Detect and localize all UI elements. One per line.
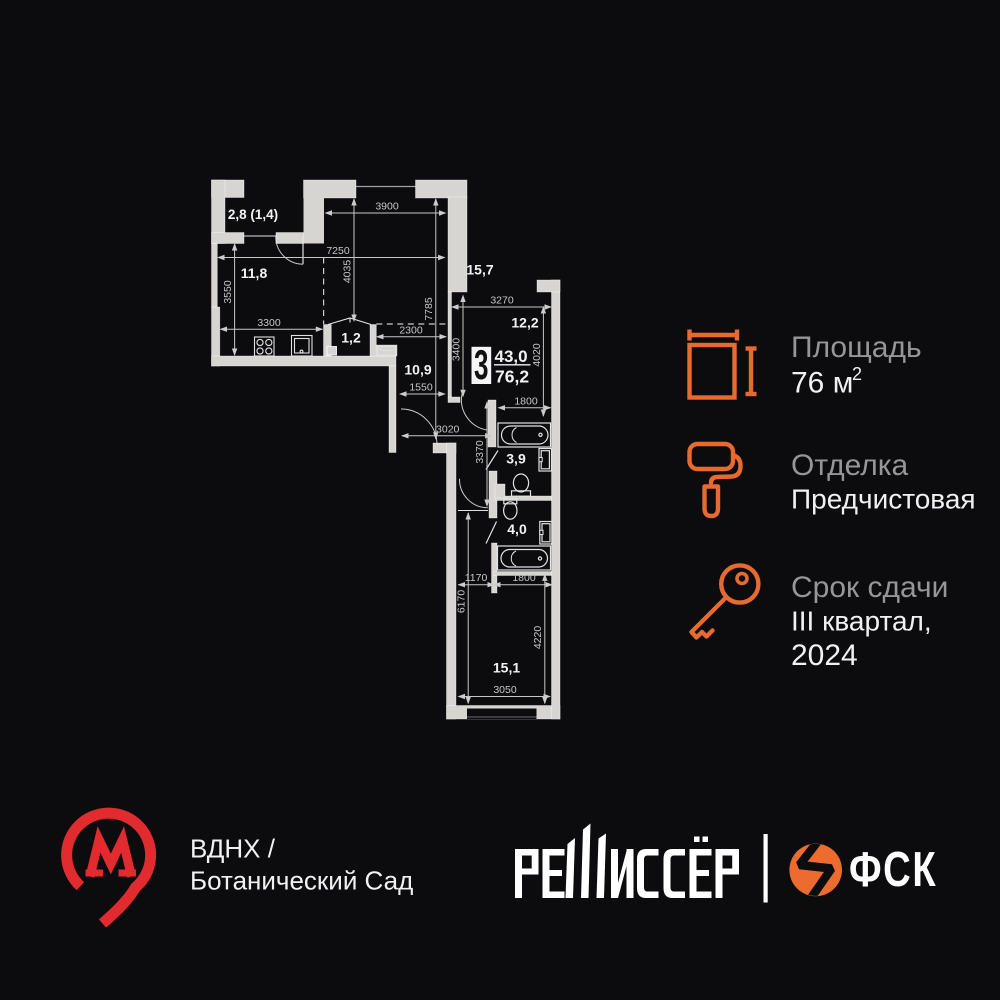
svg-text:1800: 1800 xyxy=(512,572,536,584)
svg-text:3,9: 3,9 xyxy=(506,451,526,467)
svg-text:4,0: 4,0 xyxy=(507,521,527,537)
svg-text:3400: 3400 xyxy=(451,338,463,362)
svg-text:4220: 4220 xyxy=(532,626,544,650)
svg-text:ВДНХ /: ВДНХ / xyxy=(190,834,276,864)
svg-text:2300: 2300 xyxy=(399,324,423,336)
svg-text:1550: 1550 xyxy=(409,382,433,394)
svg-text:3: 3 xyxy=(474,342,488,389)
svg-text:76,2: 76,2 xyxy=(495,367,529,387)
svg-text:Предчистовая: Предчистовая xyxy=(791,484,976,515)
svg-text:43,0: 43,0 xyxy=(495,347,528,366)
svg-text:3900: 3900 xyxy=(375,201,399,213)
svg-text:Срок сдачи: Срок сдачи xyxy=(791,571,948,604)
svg-text:4035: 4035 xyxy=(342,260,354,284)
svg-text:2024: 2024 xyxy=(791,639,858,672)
svg-text:3550: 3550 xyxy=(222,280,234,304)
svg-text:6170: 6170 xyxy=(456,590,468,614)
svg-text:3020: 3020 xyxy=(436,423,460,435)
svg-text:15,1: 15,1 xyxy=(493,660,520,676)
svg-text:2: 2 xyxy=(852,364,862,384)
svg-text:2,8 (1,4): 2,8 (1,4) xyxy=(228,207,278,222)
svg-text:3050: 3050 xyxy=(493,684,517,696)
svg-text:7785: 7785 xyxy=(423,297,435,321)
svg-text:Отделка: Отделка xyxy=(791,449,909,482)
svg-text:ФСК: ФСК xyxy=(849,843,937,898)
svg-text:11,8: 11,8 xyxy=(241,265,268,281)
svg-text:10,9: 10,9 xyxy=(404,362,431,378)
svg-text:1,2: 1,2 xyxy=(341,330,361,346)
svg-text:3370: 3370 xyxy=(474,440,486,464)
svg-text:76 м: 76 м xyxy=(791,367,853,400)
svg-text:3270: 3270 xyxy=(490,295,514,307)
svg-text:15,7: 15,7 xyxy=(466,262,493,278)
svg-text:7250: 7250 xyxy=(326,245,350,257)
svg-text:Ботанический Сад: Ботанический Сад xyxy=(190,866,413,896)
svg-text:1800: 1800 xyxy=(514,396,538,408)
svg-text:3300: 3300 xyxy=(257,317,281,329)
svg-text:4020: 4020 xyxy=(531,343,543,367)
svg-text:12,2: 12,2 xyxy=(511,315,538,331)
svg-text:III квартал,: III квартал, xyxy=(791,606,932,637)
svg-text:Площадь: Площадь xyxy=(791,331,922,364)
